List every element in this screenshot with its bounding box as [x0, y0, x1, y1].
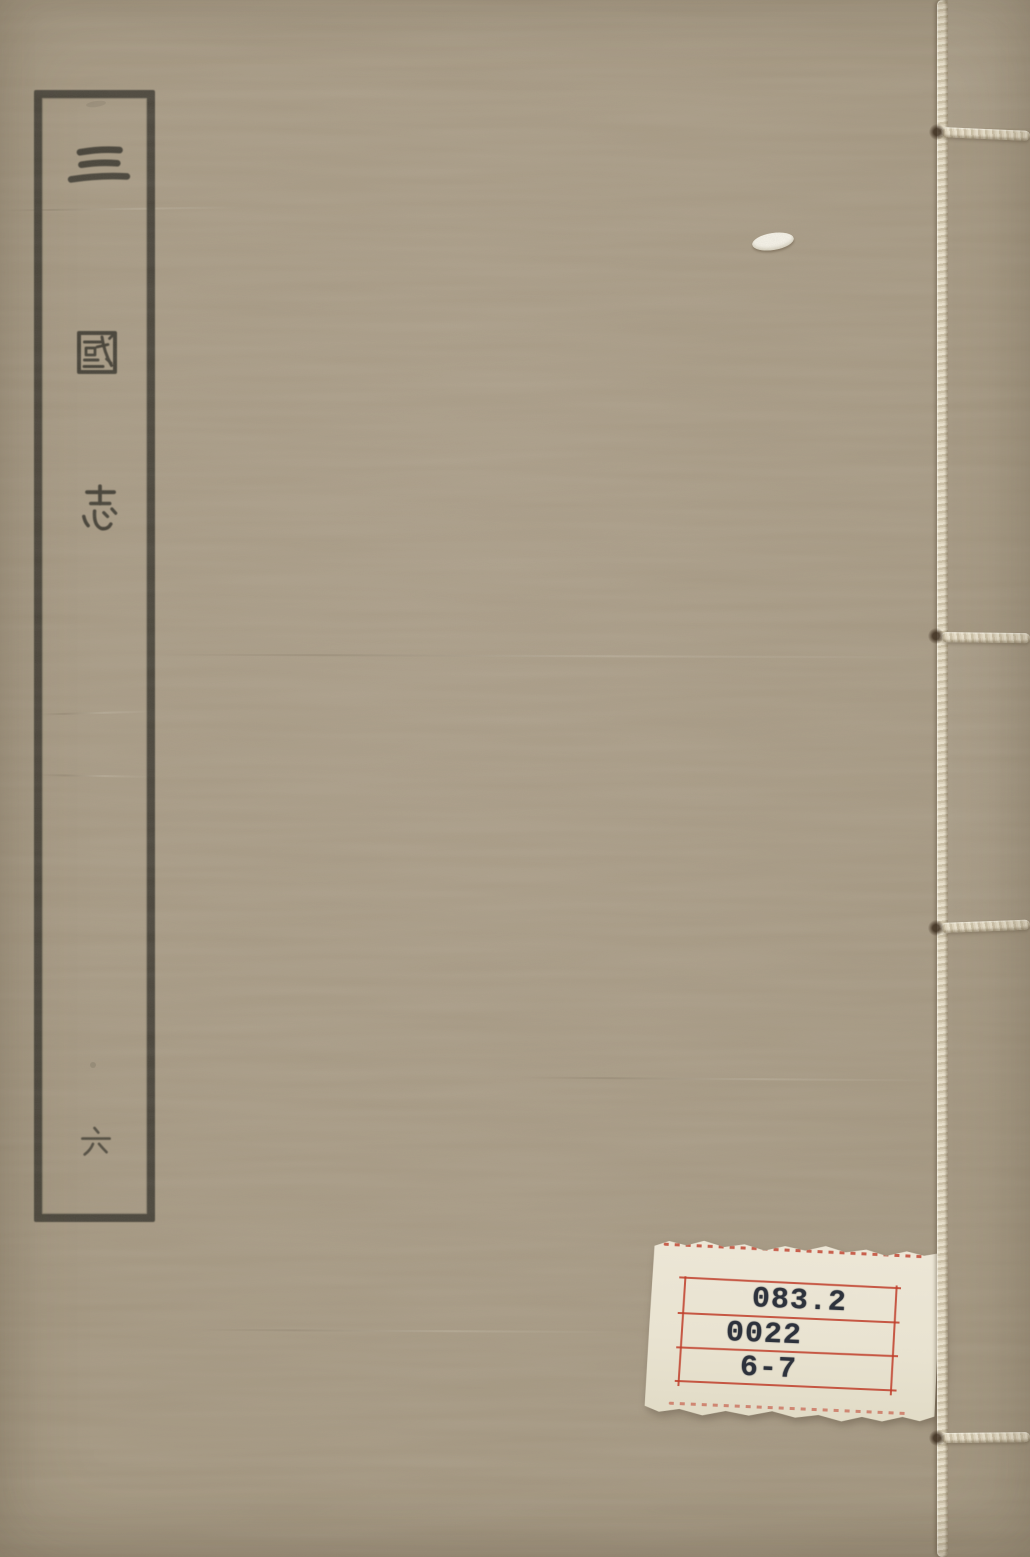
call-number-rows: 083.2 0022 6-7 [680, 1278, 896, 1391]
call-number-label: 083.2 0022 6-7 [644, 1237, 941, 1427]
paper-crease [520, 1077, 940, 1082]
call-number-value: 6-7 [739, 1351, 797, 1387]
label-paper: 083.2 0022 6-7 [644, 1237, 941, 1427]
label-perforation-bottom [669, 1402, 907, 1415]
binding-thread-vertical [937, 0, 948, 1557]
book-cover: 三 國 志 [0, 0, 1030, 1557]
title-character-zhi: 志 [68, 483, 132, 537]
title-character-san: 三 [61, 142, 137, 186]
cover-edge-panel [948, 634, 1030, 926]
call-number-grid: 083.2 0022 6-7 [680, 1278, 896, 1391]
call-number-value: 0022 [725, 1316, 802, 1353]
binding-thread-horizontal [941, 632, 1030, 643]
paper-crease [150, 654, 940, 659]
binding-thread-horizontal [941, 920, 1030, 933]
label-perforation-top [664, 1243, 926, 1259]
binding-thread-horizontal [941, 127, 1030, 141]
title-frame [34, 90, 155, 1222]
call-number-value: 083.2 [751, 1282, 847, 1320]
volume-character-liu: 六 [77, 1125, 115, 1159]
cover-edge-panel [948, 0, 1030, 128]
paper-speck [751, 230, 795, 253]
binding-thread-horizontal [941, 1432, 1030, 1443]
title-character-guo: 國 [66, 327, 128, 377]
paper-crease [200, 1329, 630, 1333]
ink-smudge [90, 1062, 96, 1068]
